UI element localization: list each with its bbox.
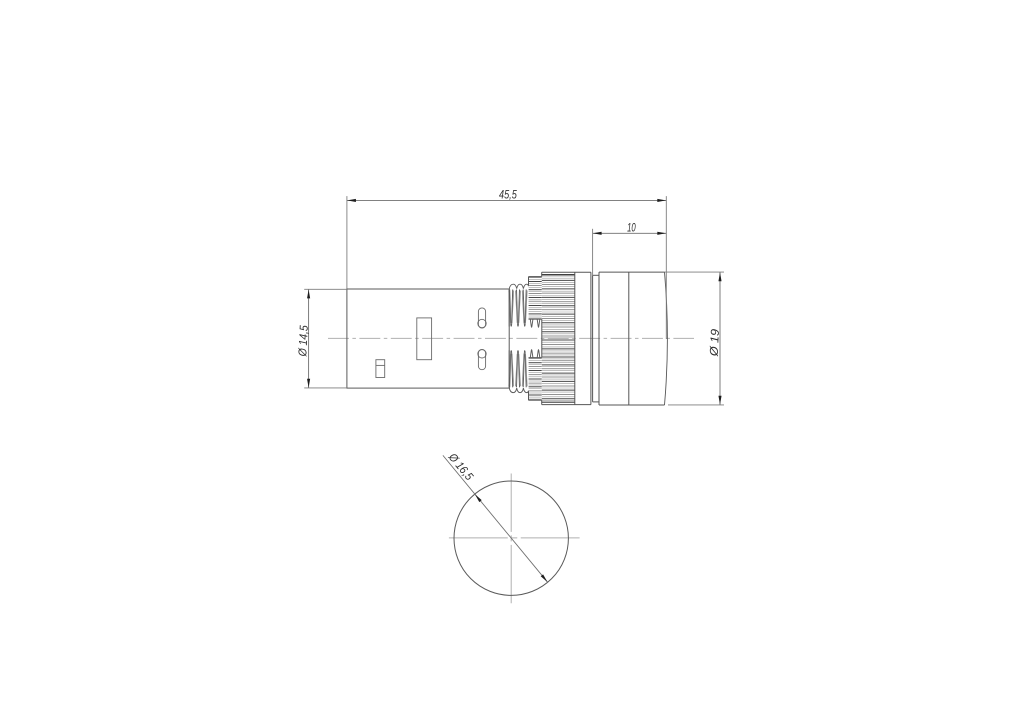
svg-text:Ø 19: Ø 19 xyxy=(708,328,722,357)
svg-text:Ø 16,5: Ø 16,5 xyxy=(445,450,476,483)
svg-text:45,5: 45,5 xyxy=(499,188,517,201)
svg-text:10: 10 xyxy=(627,221,636,234)
svg-text:Ø 14,5: Ø 14,5 xyxy=(296,325,311,358)
